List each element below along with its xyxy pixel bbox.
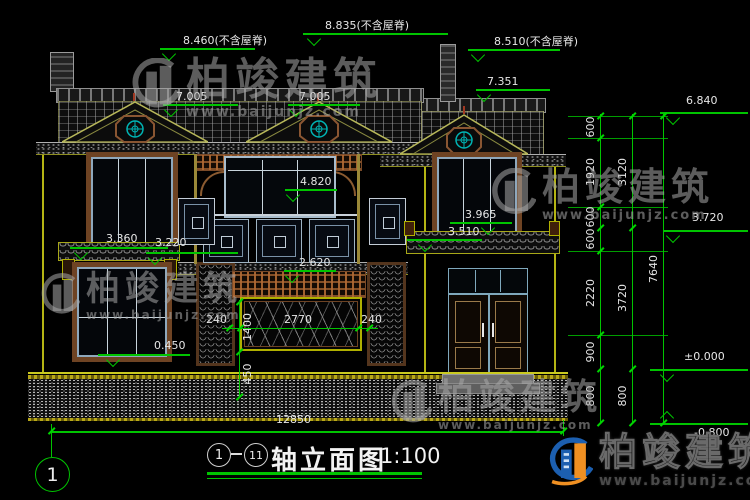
dim-extension-line <box>568 251 668 252</box>
level-text: 6.840 <box>686 95 718 107</box>
dim-extension-line <box>568 138 668 139</box>
dim-text: 600 <box>585 207 597 228</box>
balcony-post-right <box>357 154 360 264</box>
level-text: 0.450 <box>154 340 186 352</box>
level-line <box>146 252 238 254</box>
door-panel <box>455 347 481 369</box>
dim-text: 12850 <box>276 414 311 426</box>
dim-text: 600 <box>585 229 597 250</box>
level-line <box>450 222 512 224</box>
brand-site: www.baijunjz.com <box>599 474 750 488</box>
dim-text: 1400 <box>242 313 254 341</box>
railing-top-rail <box>197 214 357 216</box>
window-mullion <box>145 159 146 243</box>
level-text: 7.351 <box>487 76 519 88</box>
drawing-scale: 1:100 <box>380 444 441 468</box>
double-door <box>448 294 528 376</box>
dim-text: 240 <box>206 314 227 326</box>
axis-bubble-1: 1 <box>35 457 70 492</box>
title-axis-end-bubble: 11 <box>244 443 268 467</box>
transom-mullion <box>500 270 501 292</box>
canopy-finial <box>549 221 560 236</box>
level-text: 3.360 <box>106 233 138 245</box>
level-line <box>70 247 168 249</box>
dim-tick <box>597 419 604 426</box>
dim-text: 3120 <box>617 158 629 186</box>
level-text: 7.005 <box>176 91 208 103</box>
dim-tick <box>629 419 636 426</box>
level-text: 3.720 <box>692 212 724 224</box>
dim-text: 600 <box>585 117 597 138</box>
transom-mullion <box>475 270 476 292</box>
dim-chain-line-inner <box>600 114 601 424</box>
brand-logo-footer: 柏竣建筑 www.baijunjz.com <box>545 433 750 491</box>
dim-extension-line <box>568 116 668 117</box>
level-line <box>468 49 560 51</box>
window-mullion <box>297 160 298 214</box>
window-mullion <box>107 269 108 355</box>
door-panel <box>495 347 521 369</box>
drawing-title: 轴立面图 <box>271 440 387 477</box>
window-mullion <box>118 159 119 243</box>
level-text: 2.620 <box>299 257 331 269</box>
door-panel <box>455 301 481 343</box>
dim-text: 800 <box>585 386 597 407</box>
brand-logo-color-icon <box>545 433 593 491</box>
window-mullion <box>136 269 137 355</box>
dormer-gable-mid <box>246 99 392 143</box>
door-step-lower <box>436 383 540 394</box>
window-mullion <box>262 160 263 214</box>
ridge-finial-mid <box>440 44 456 102</box>
level-text: 4.820 <box>300 176 332 188</box>
railing-panel <box>256 219 302 263</box>
cad-elevation-canvas: 8.460(不含屋脊) 8.835(不含屋脊) 8.510(不含屋脊) 7.00… <box>0 0 750 500</box>
door-handle <box>492 323 494 337</box>
dim-chain-line-outer <box>663 114 664 424</box>
door-transom <box>448 268 528 294</box>
dim-text: 800 <box>617 386 629 407</box>
dormer-apex-mark <box>463 106 465 114</box>
dim-text: 1920 <box>585 158 597 186</box>
dim-extension-line <box>568 335 668 336</box>
level-text: ±0.000 <box>684 351 725 363</box>
brand-site: www.baijunjz.com <box>542 209 714 222</box>
level-line <box>407 239 482 241</box>
level-text: -0.800 <box>694 427 729 439</box>
level-text: 3.220 <box>155 237 187 249</box>
canopy-finial <box>404 221 415 236</box>
wall-edge-mid <box>424 164 426 373</box>
dim-extension-line <box>568 207 668 208</box>
dim-chain-line-mid <box>632 114 633 424</box>
wall-edge-left <box>42 150 44 374</box>
level-line <box>160 48 255 50</box>
dormer-apex-mark <box>133 93 135 101</box>
door-panel <box>495 301 521 343</box>
dim-line-mural-height <box>239 300 240 398</box>
wall-edge-right <box>554 164 556 373</box>
dormer-gable-right <box>400 112 528 155</box>
lattice-panel-2f-right <box>369 198 406 245</box>
window-rail <box>79 317 165 318</box>
dim-line-total-width <box>51 431 563 433</box>
level-text: 8.510(不含屋脊) <box>494 36 578 48</box>
level-text: 8.460(不含屋脊) <box>183 35 267 47</box>
level-text: 3.510 <box>448 226 480 238</box>
level-text: 7.005 <box>299 91 331 103</box>
dormer-gable-left <box>62 99 208 143</box>
title-dash <box>231 453 242 455</box>
level-text: 8.835(不含屋脊) <box>325 20 409 32</box>
window-transom-rail <box>228 170 332 171</box>
level-text: 3.965 <box>465 209 497 221</box>
dim-text: 3720 <box>617 284 629 312</box>
ridge-finial-left <box>50 52 74 92</box>
dim-text: 240 <box>361 314 382 326</box>
dim-line-mural-width <box>222 328 378 329</box>
dim-text: 7640 <box>648 255 660 283</box>
title-axis-start-bubble: 1 <box>207 443 231 467</box>
dim-text: 2220 <box>585 279 597 307</box>
door-handle <box>482 323 484 337</box>
dim-text: 2770 <box>284 314 312 326</box>
door-split-line <box>488 295 490 375</box>
level-line <box>303 33 448 35</box>
dim-text: 900 <box>585 342 597 363</box>
dim-text: 450 <box>242 364 254 385</box>
title-underline-thin <box>207 478 422 479</box>
